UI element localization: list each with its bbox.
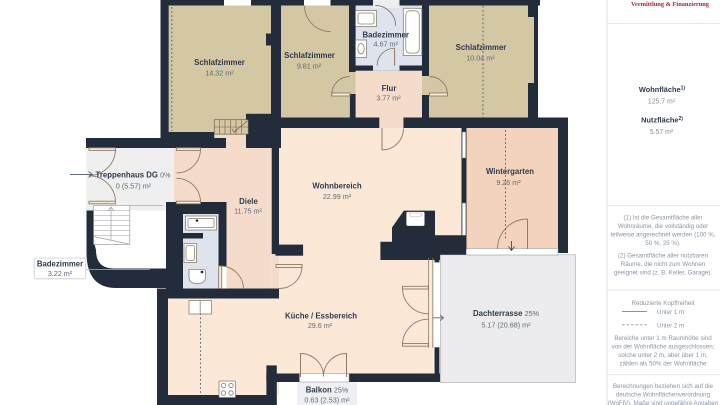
svg-text:Schlafzimmer: Schlafzimmer <box>194 58 245 67</box>
svg-text:9.81 m²: 9.81 m² <box>297 62 322 71</box>
svg-text:Treppenhaus DG 0%: Treppenhaus DG 0% <box>96 171 172 180</box>
svg-text:5.17 (20.68) m²: 5.17 (20.68) m² <box>481 321 531 330</box>
svg-text:Badezimmer: Badezimmer <box>37 260 83 269</box>
svg-text:(1) Ist die Gesamtfläche aller: (1) Ist die Gesamtfläche aller <box>623 215 702 222</box>
svg-text:Unter 1 m: Unter 1 m <box>657 309 684 316</box>
svg-text:10.04 m²: 10.04 m² <box>466 54 495 63</box>
svg-text:deutsche Wohnflächenverordnung: deutsche Wohnflächenverordnung <box>616 392 711 399</box>
svg-text:Wohnräume, die vollständig ode: Wohnräume, die vollständig oder <box>618 223 708 230</box>
svg-text:4.67 m²: 4.67 m² <box>374 40 399 49</box>
svg-text:(WoFlV). Maße sind ungefähre A: (WoFlV). Maße sind ungefähre Angaben <box>608 400 719 405</box>
svg-text:Wohnbereich: Wohnbereich <box>312 182 361 191</box>
svg-text:(2) Gesamtfläche aller nutzbar: (2) Gesamtfläche aller nutzbaren <box>618 253 709 260</box>
svg-text:5.57 m²: 5.57 m² <box>650 129 674 136</box>
svg-text:Dachterrasse 25%: Dachterrasse 25% <box>473 309 540 318</box>
svg-text:teilweise angerechnet werden (: teilweise angerechnet werden (100 %, <box>611 232 716 239</box>
svg-text:Nutzfläche2): Nutzfläche2) <box>641 116 683 125</box>
svg-text:geeignet sind (z. B. Keller, G: geeignet sind (z. B. Keller, Garage). <box>614 270 712 277</box>
svg-text:3.77 m²: 3.77 m² <box>376 94 401 103</box>
svg-text:Wintergarten: Wintergarten <box>486 167 534 176</box>
svg-text:29.6 m²: 29.6 m² <box>308 321 333 330</box>
svg-text:Berechnungen beziehen sich auf: Berechnungen beziehen sich auf die <box>613 383 714 390</box>
svg-text:3.22 m²: 3.22 m² <box>48 269 73 278</box>
svg-text:0 (5.57) m²: 0 (5.57) m² <box>116 182 152 191</box>
svg-text:Küche / Essbereich: Küche / Essbereich <box>285 312 357 321</box>
svg-text:Schlafzimmer: Schlafzimmer <box>284 51 335 60</box>
svg-text:Balkon 25%: Balkon 25% <box>306 386 349 395</box>
svg-text:zählen als 50% der Wohnfläche: zählen als 50% der Wohnfläche <box>620 361 707 368</box>
svg-text:Räume, die nicht zum Wohnen: Räume, die nicht zum Wohnen <box>621 261 706 268</box>
svg-text:Unter 2 m: Unter 2 m <box>657 322 684 329</box>
svg-text:22.99 m²: 22.99 m² <box>323 192 352 201</box>
svg-text:Badezimmer: Badezimmer <box>363 30 409 39</box>
svg-text:125.7 m²: 125.7 m² <box>648 99 676 106</box>
svg-text:14.32 m²: 14.32 m² <box>205 69 234 78</box>
svg-text:von der Wohnfläche ausgeschlos: von der Wohnfläche ausgeschlossen; <box>612 344 715 351</box>
svg-text:9.26 m²: 9.26 m² <box>496 178 521 187</box>
svg-text:Flur: Flur <box>382 84 397 93</box>
svg-text:Schlafzimmer: Schlafzimmer <box>456 43 507 52</box>
svg-text:Wohnfläche1): Wohnfläche1) <box>639 85 686 94</box>
svg-text:solche unter 2 m, aber über 1: solche unter 2 m, aber über 1 m, <box>618 352 708 359</box>
svg-text:0.63 (2.53) m²: 0.63 (2.53) m² <box>304 396 350 405</box>
svg-text:Bereiche unter 1 m Raumhöhe si: Bereiche unter 1 m Raumhöhe sind <box>614 335 712 342</box>
svg-text:Vermittlung & Finanzierung: Vermittlung & Finanzierung <box>631 1 710 8</box>
svg-text:Reduzierte Kopffreiheit: Reduzierte Kopffreiheit <box>632 300 695 307</box>
svg-text:50 %, 25 %).: 50 %, 25 %). <box>645 240 681 247</box>
svg-text:11.75 m²: 11.75 m² <box>234 207 262 216</box>
svg-text:Diele: Diele <box>239 197 258 206</box>
